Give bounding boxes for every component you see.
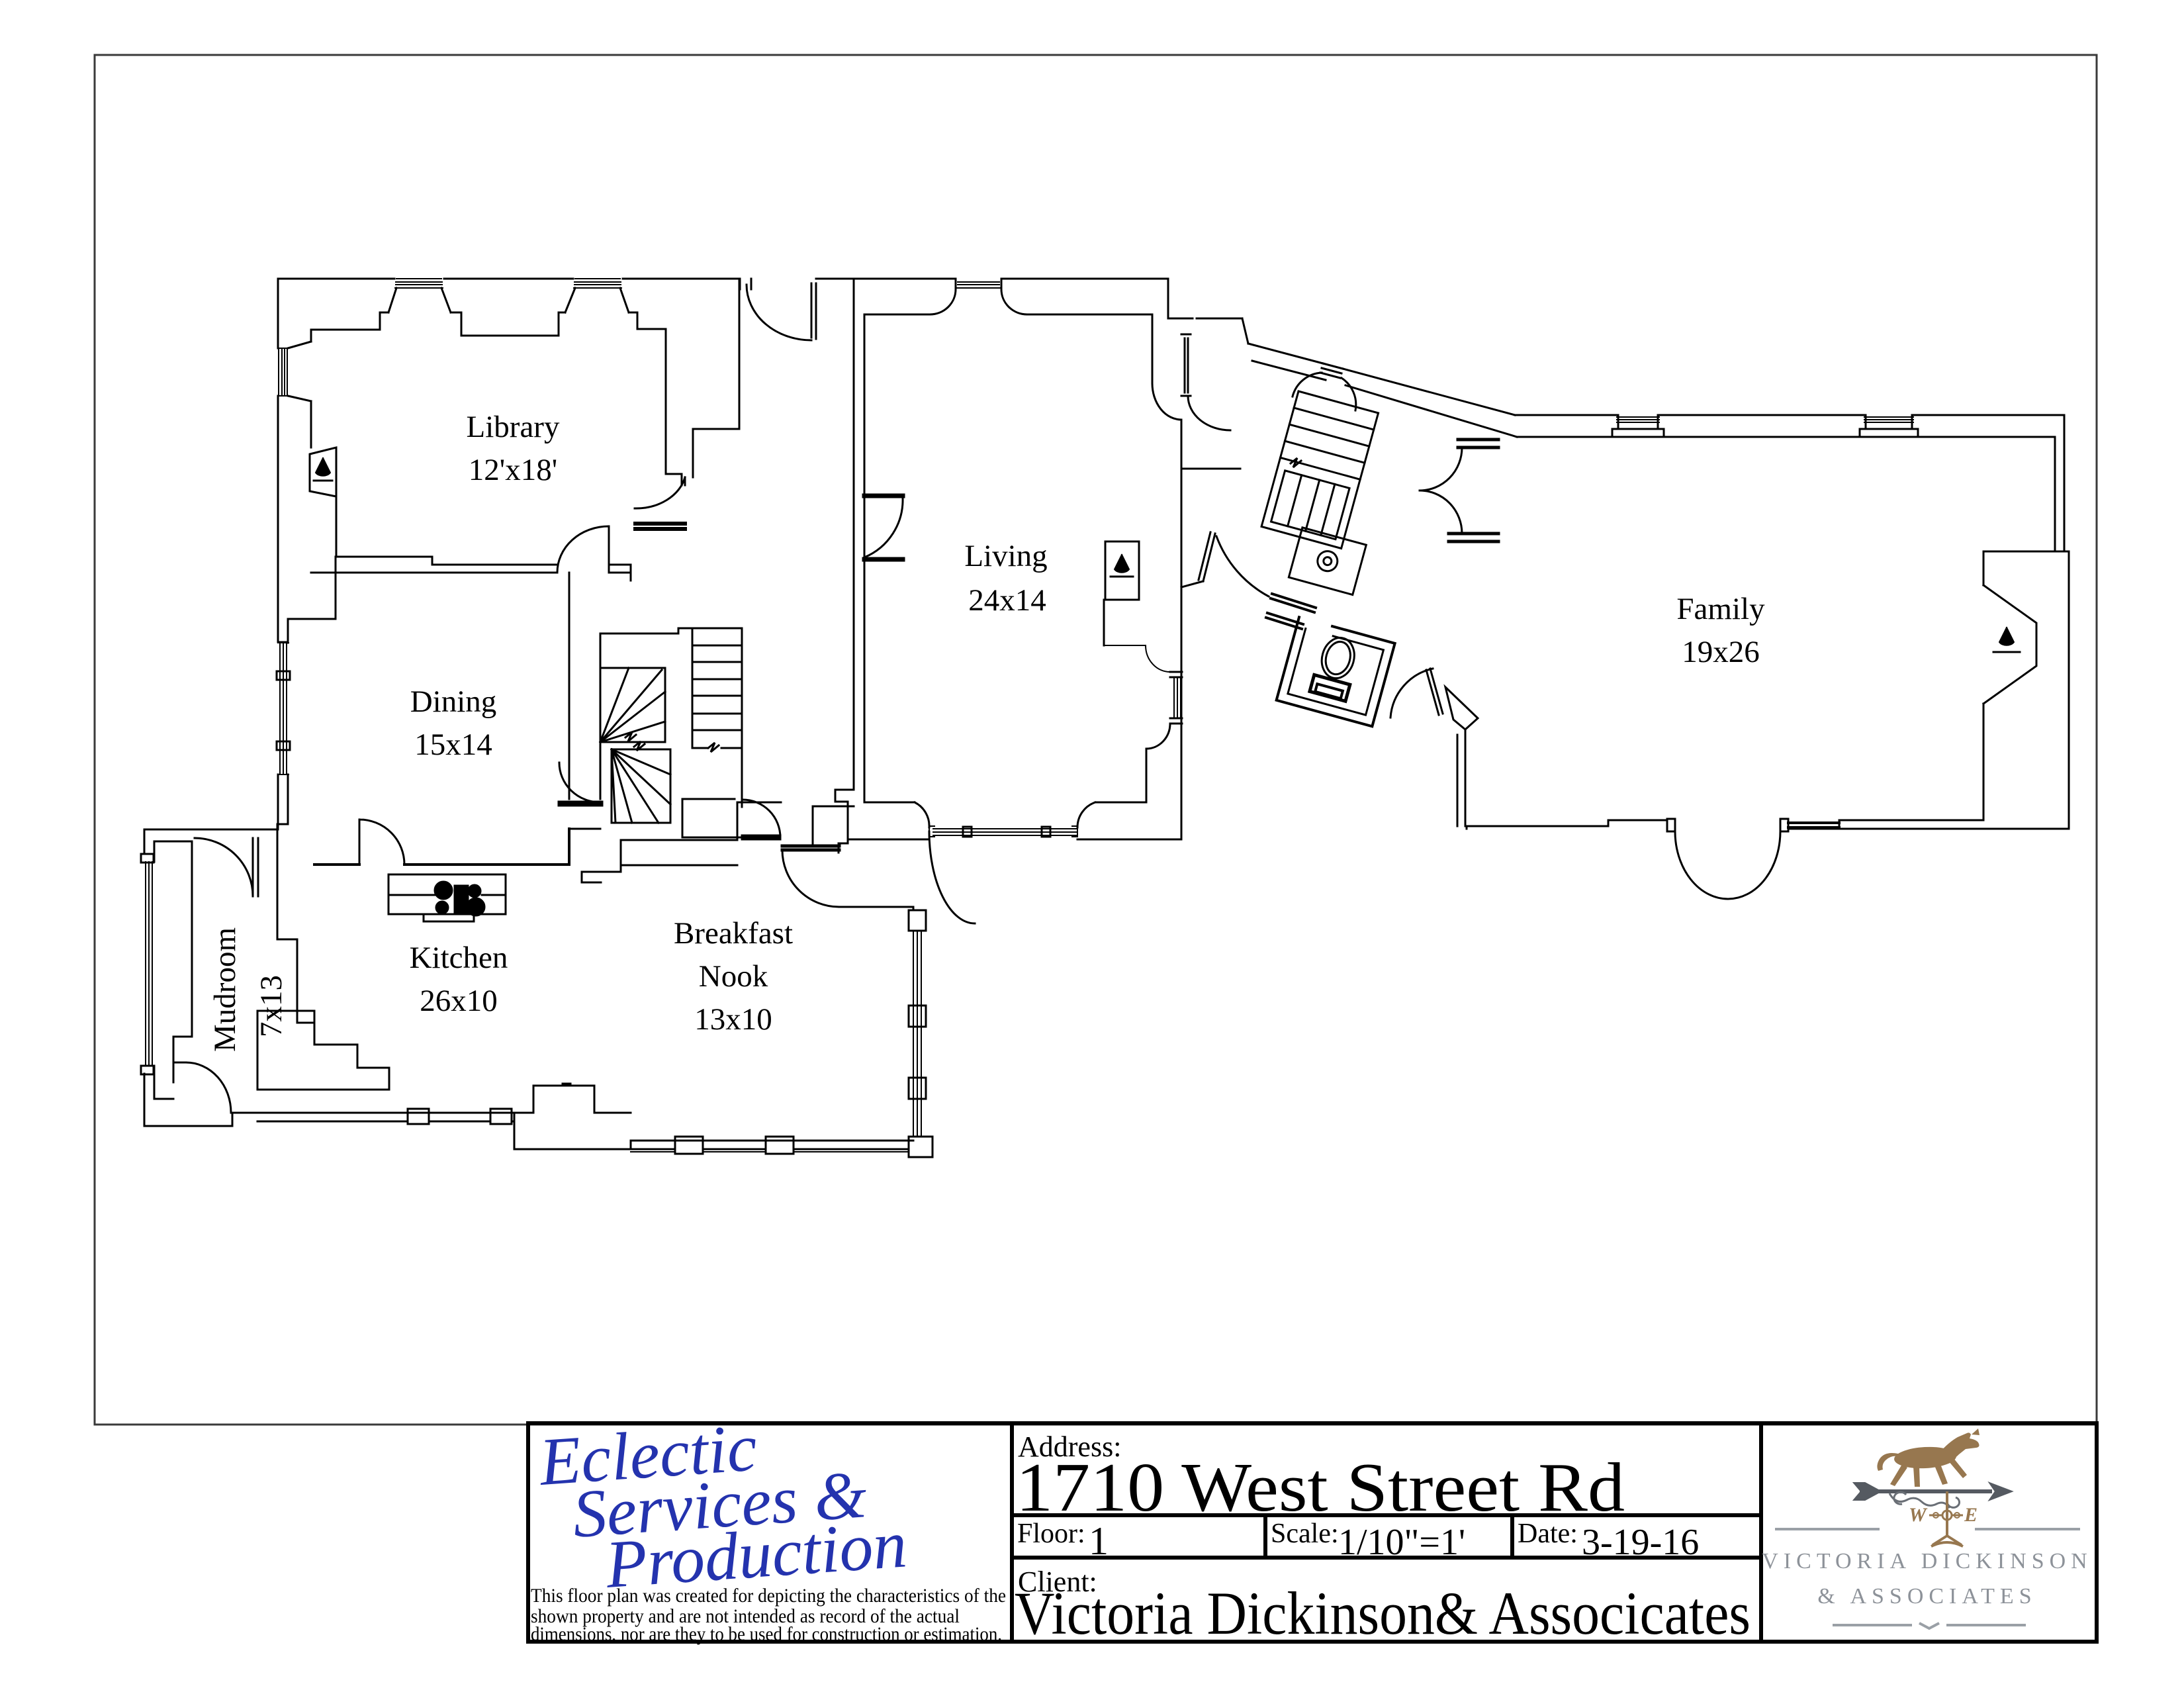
svg-text:& ASSOCIATES: & ASSOCIATES: [1817, 1584, 2036, 1609]
svg-text:Family: Family: [1676, 592, 1765, 626]
svg-text:dimensions, nor are they to be: dimensions, nor are they to be used for …: [531, 1624, 1002, 1645]
svg-text:19x26: 19x26: [1682, 635, 1760, 669]
svg-text:26x10: 26x10: [420, 984, 498, 1018]
svg-text:7x13: 7x13: [254, 975, 289, 1037]
svg-text:W: W: [1909, 1504, 1928, 1526]
svg-text:Kitchen: Kitchen: [410, 941, 508, 975]
svg-text:Scale:: Scale:: [1271, 1519, 1339, 1549]
svg-text:13x10: 13x10: [694, 1002, 772, 1037]
svg-text:24x14: 24x14: [968, 583, 1046, 618]
svg-text:Dining: Dining: [410, 684, 497, 719]
svg-text:Date:: Date:: [1518, 1519, 1578, 1549]
svg-text:3-19-16: 3-19-16: [1582, 1522, 1699, 1563]
svg-text:E: E: [1964, 1504, 1978, 1526]
svg-text:Victoria Dickinson& Associcate: Victoria Dickinson& Associcates: [1015, 1579, 1751, 1647]
svg-text:Mudroom: Mudroom: [208, 927, 242, 1052]
svg-text:15x14: 15x14: [414, 727, 492, 762]
svg-text:1: 1: [1089, 1519, 1109, 1563]
svg-text:This floor plan was created fo: This floor plan was created for depictin…: [531, 1585, 1006, 1607]
svg-text:VICTORIA DICKINSON: VICTORIA DICKINSON: [1762, 1549, 2092, 1573]
svg-text:Library: Library: [467, 410, 560, 444]
svg-text:1/10"=1': 1/10"=1': [1338, 1522, 1465, 1563]
svg-text:1710 West Street Rd: 1710 West Street Rd: [1016, 1448, 1625, 1526]
svg-text:Living: Living: [964, 539, 1047, 573]
svg-text:Floor:: Floor:: [1017, 1519, 1085, 1549]
svg-text:12'x18': 12'x18': [469, 453, 557, 487]
svg-text:Breakfast: Breakfast: [674, 916, 793, 951]
svg-text:Nook: Nook: [699, 959, 768, 994]
